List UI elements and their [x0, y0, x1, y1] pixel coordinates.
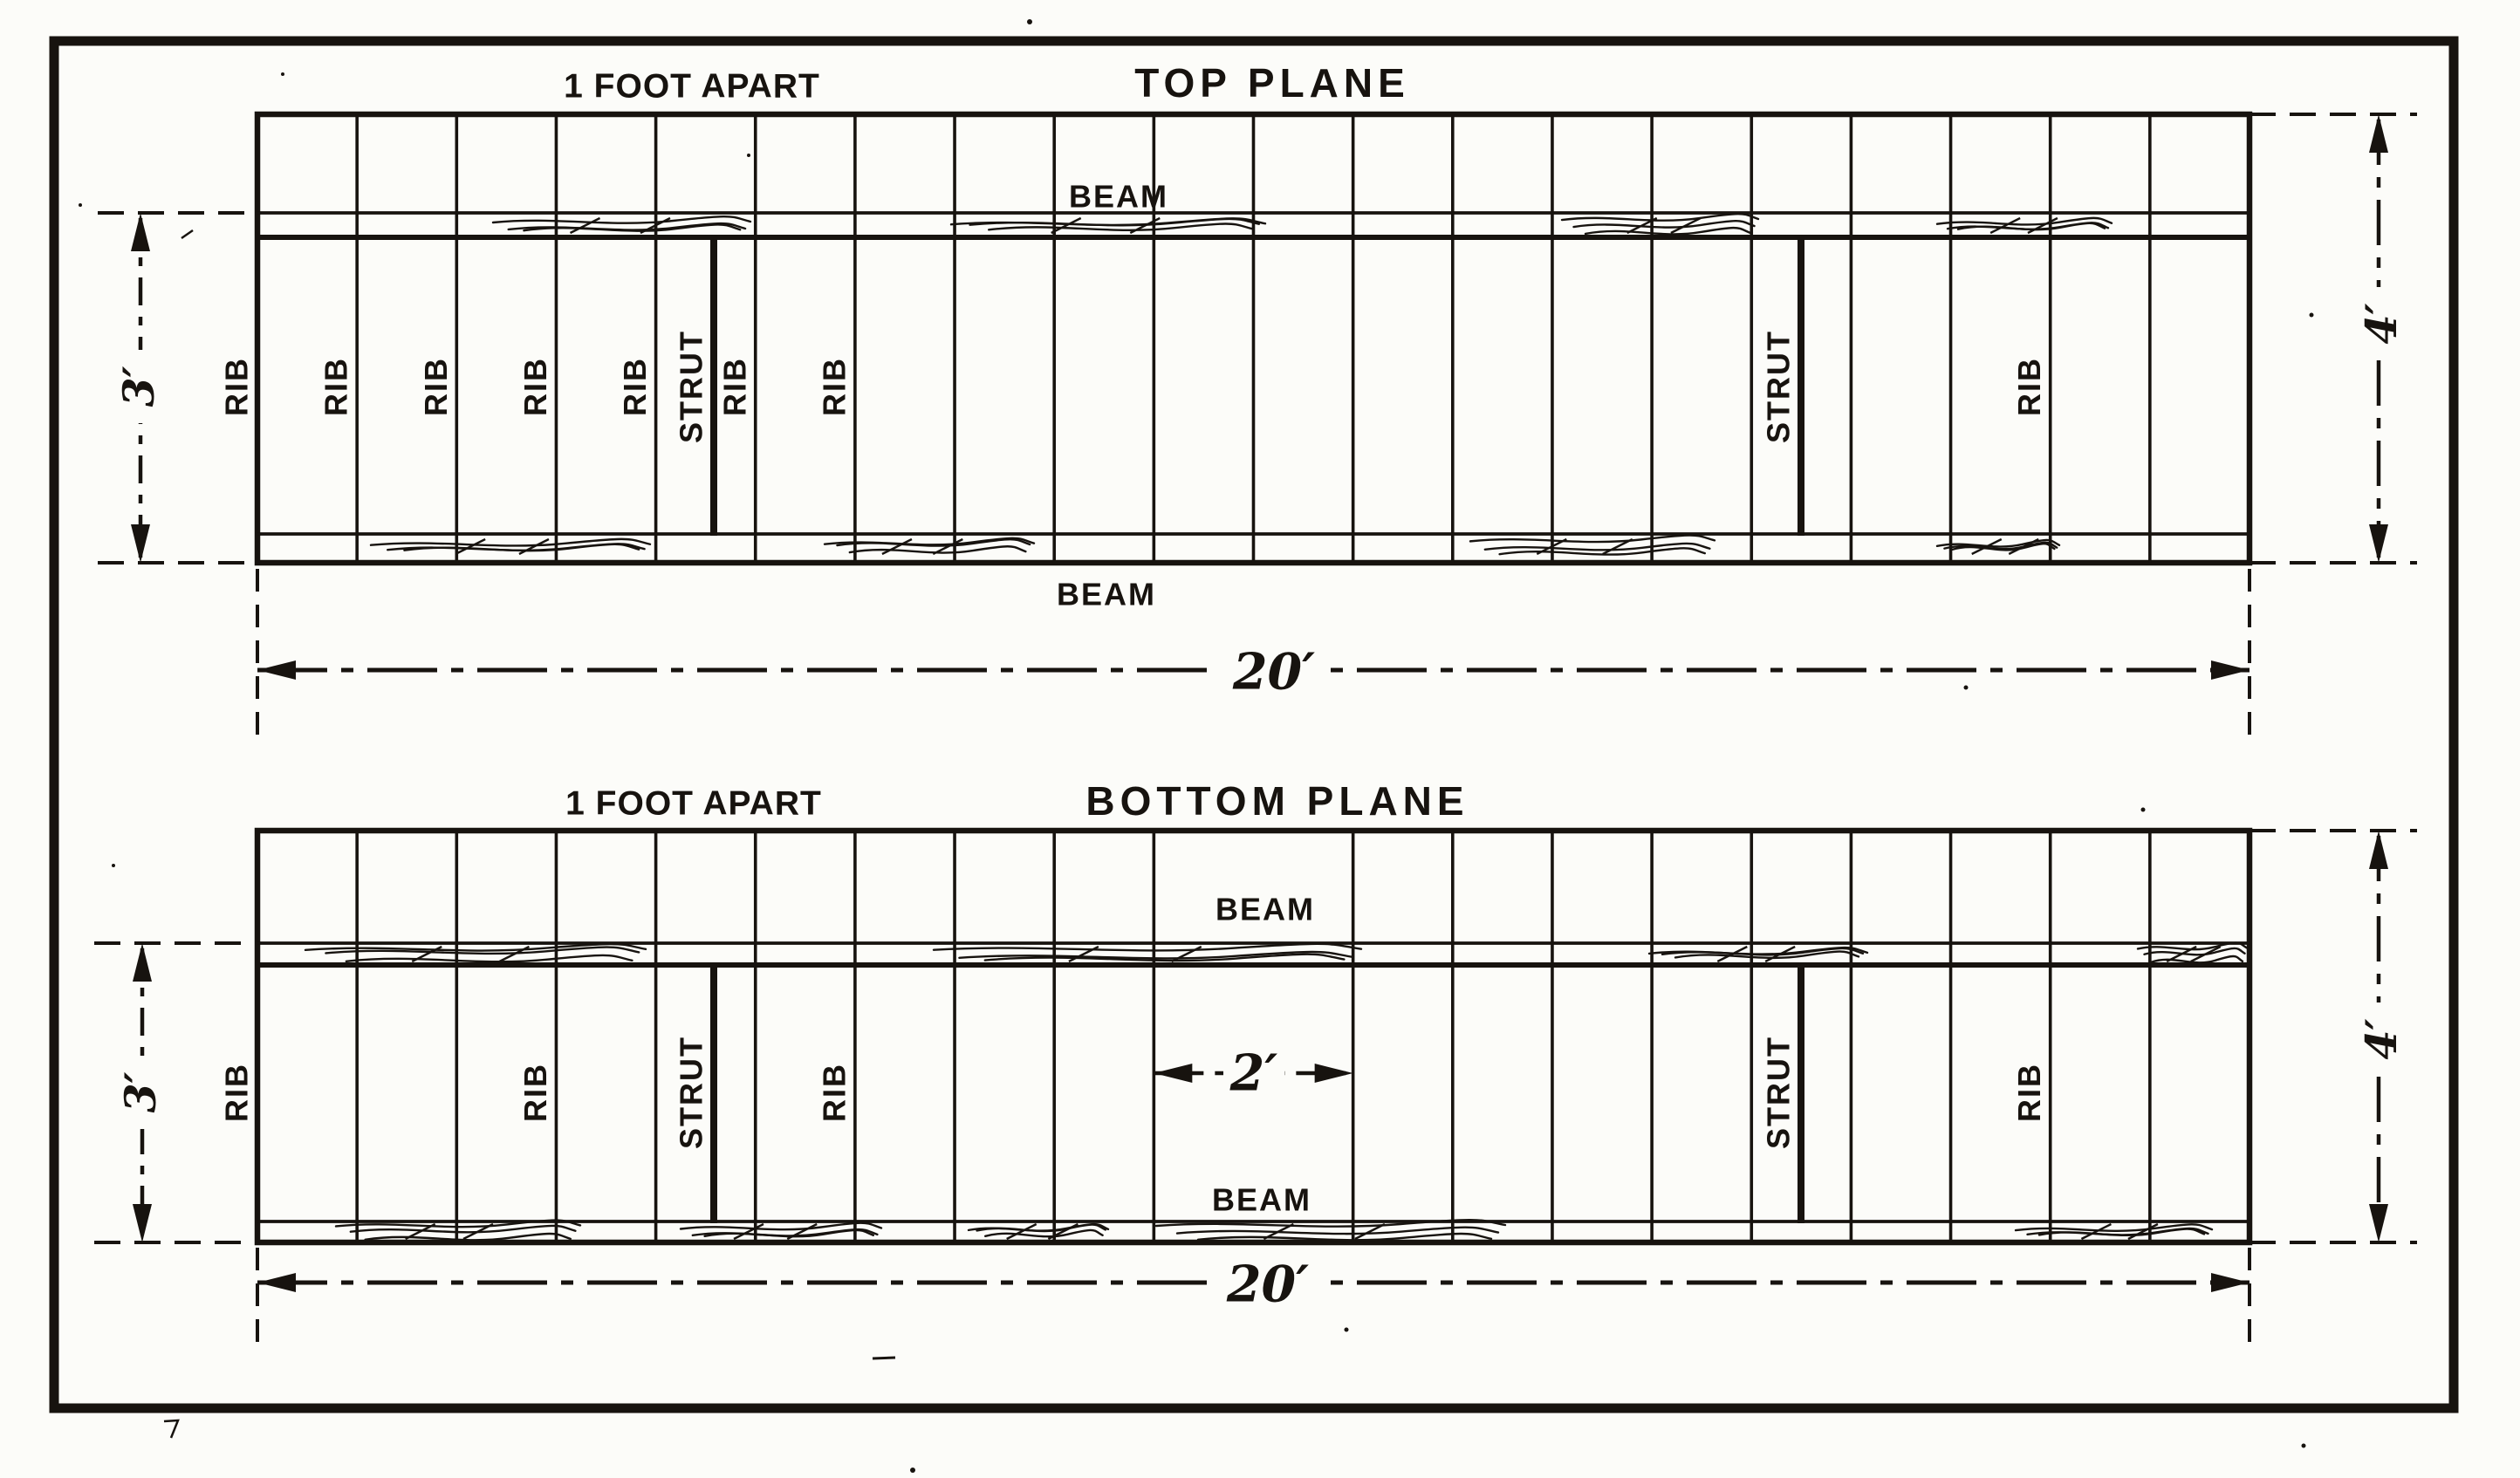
dimension-text: 4′: [2356, 1018, 2407, 1059]
dimension-text: 4′: [2356, 303, 2407, 344]
rib-spacing-note: 1 FOOT APART: [565, 785, 822, 823]
arrowhead-icon: [257, 660, 296, 680]
dimension-text: 2′: [1229, 1044, 1278, 1103]
mid-span-dimension: 2′: [1154, 1043, 1352, 1104]
ink-speck: [1027, 19, 1032, 24]
arrowhead-icon: [2369, 831, 2388, 869]
wood-grain: [2138, 943, 2247, 963]
rib-label: RIB: [219, 357, 255, 416]
chord-dimension: 4′: [2250, 831, 2417, 1242]
beam-label: BEAM: [1069, 179, 1168, 215]
wood-grain-stroke: [705, 1230, 873, 1236]
wood-grain: [1562, 214, 1758, 234]
wood-grain-stroke: [1585, 228, 1750, 234]
dimension-text: 20′: [1226, 1256, 1309, 1314]
wood-grain-stroke: [346, 955, 633, 961]
beam-label: BEAM: [1215, 892, 1315, 927]
rib-label: RIB: [816, 1063, 852, 1122]
span-dimension: 20′: [257, 569, 2250, 735]
beam-label: BEAM: [1212, 1182, 1311, 1218]
wood-grain-tick: [455, 539, 485, 554]
wood-grain: [493, 216, 750, 233]
bottom-plane-section: 1 FOOT APARTBOTTOM PLANEBEAMBEAMRIBRIBRI…: [94, 778, 2417, 1351]
wood-grain-stroke: [1562, 214, 1758, 221]
rib-label: RIB: [2011, 357, 2047, 416]
wood-grain: [1470, 536, 1715, 555]
wood-grain: [951, 218, 1265, 233]
chord-dimension: 4′: [2250, 114, 2417, 563]
wood-grain: [2016, 1224, 2212, 1239]
ink-speck: [1964, 686, 1969, 690]
strut-label: STRUT: [674, 1036, 709, 1149]
wood-grain-tick: [571, 218, 600, 233]
wood-grain: [934, 944, 1361, 961]
ink-speck: [747, 154, 750, 157]
ink-speck: [164, 1420, 178, 1438]
arrowhead-icon: [2369, 524, 2388, 563]
wood-grain-stroke: [681, 1223, 881, 1230]
wood-grain-tick: [1172, 947, 1202, 961]
plane-title: BOTTOM PLANE: [1085, 778, 1469, 824]
ink-speck: [281, 72, 284, 76]
arrowhead-icon: [1154, 1064, 1192, 1083]
scanned-figure-page: 1 FOOT APARTTOP PLANEBEAMBEAMRIBRIBRIBRI…: [0, 0, 2520, 1478]
rib-label: RIB: [418, 357, 454, 416]
ink-speck: [79, 203, 82, 207]
strut-label: STRUT: [1761, 1036, 1797, 1149]
ink-speck: [873, 1358, 895, 1358]
ink-speck: [2141, 808, 2146, 812]
rib-label: RIB: [517, 1063, 553, 1122]
wood-grain-stroke: [493, 216, 750, 223]
plane-title: TOP PLANE: [1134, 60, 1410, 106]
dimension-text: 3′: [115, 1071, 166, 1112]
rib-label: RIB: [816, 357, 852, 416]
wood-grain: [1937, 218, 2112, 233]
span-dimension: 20′: [257, 1248, 2250, 1351]
rib-label: RIB: [617, 357, 653, 416]
arrowhead-icon: [133, 1204, 152, 1242]
wing-framing-figure: 1 FOOT APARTTOP PLANEBEAMBEAMRIBRIBRIBRI…: [0, 0, 2520, 1478]
rib-label: RIB: [318, 357, 354, 416]
wood-grain-stroke: [934, 944, 1361, 951]
wood-grain-tick: [1990, 218, 2020, 233]
arrowhead-icon: [1315, 1064, 1353, 1083]
ink-speck: [910, 1468, 915, 1473]
rib-label: RIB: [2011, 1063, 2047, 1122]
ink-speck: [2310, 313, 2314, 318]
strut-label: STRUT: [674, 330, 709, 443]
wood-grain-stroke: [1470, 536, 1715, 543]
wood-grain: [371, 539, 650, 554]
arrowhead-icon: [131, 213, 150, 251]
arrowhead-icon: [257, 1273, 296, 1292]
rib-label: RIB: [716, 357, 752, 416]
beam-label: BEAM: [1057, 577, 1156, 612]
arrowhead-icon: [2369, 114, 2388, 153]
wood-grain-stroke: [1177, 1228, 1498, 1234]
ink-speck: [1345, 1328, 1349, 1332]
wood-grain: [969, 1224, 1108, 1239]
ink-speck: [112, 864, 115, 867]
dimension-text: 20′: [1232, 643, 1315, 701]
arrowhead-icon: [2369, 1204, 2388, 1242]
wood-grain: [1649, 947, 1867, 961]
wood-grain: [1937, 539, 2059, 554]
wood-grain: [681, 1223, 881, 1239]
arrowhead-icon: [2211, 1273, 2250, 1292]
dimension-text: 3′: [113, 366, 164, 407]
arrowhead-icon: [131, 524, 150, 563]
wood-grain-stroke: [1574, 221, 1755, 227]
wood-grain-tick: [734, 1224, 764, 1239]
arrowhead-icon: [133, 943, 152, 982]
rib-spacing-note: 1 FOOT APART: [564, 68, 820, 106]
arrowhead-icon: [2211, 660, 2250, 680]
top-plane-section: 1 FOOT APARTTOP PLANEBEAMBEAMRIBRIBRIBRI…: [98, 60, 2417, 735]
rib-label: RIB: [517, 357, 553, 416]
rib-label: RIB: [219, 1063, 255, 1122]
ink-speck: [2302, 1444, 2306, 1448]
strut-label: STRUT: [1761, 330, 1797, 443]
wood-grain-stroke: [837, 539, 1030, 545]
ink-speck: [181, 230, 193, 238]
